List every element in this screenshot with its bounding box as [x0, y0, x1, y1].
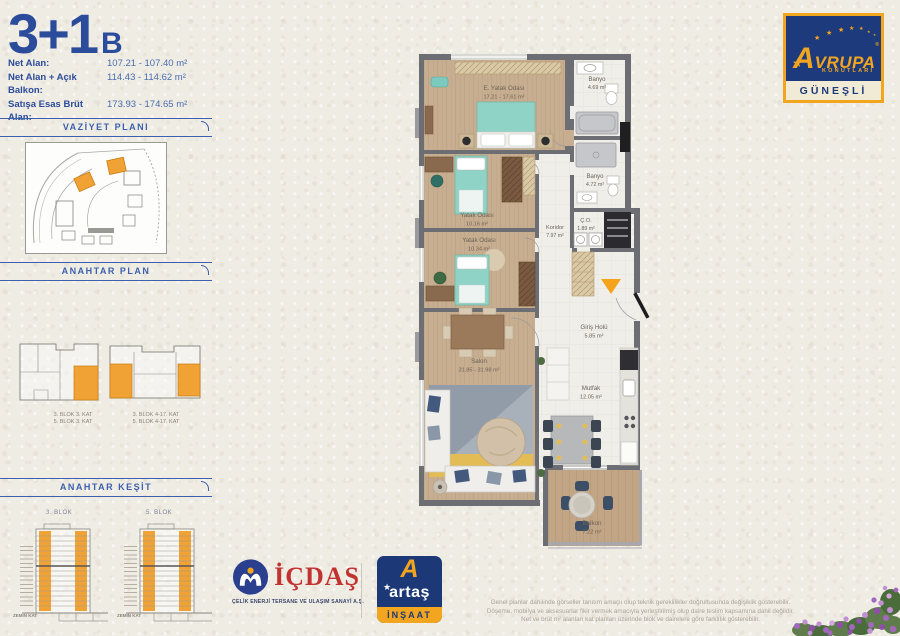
pillow — [486, 471, 502, 485]
room-area: 5.85 m² — [585, 334, 604, 340]
room-area: 7.97 m² — [546, 233, 564, 239]
logo-divider — [361, 563, 362, 618]
chair — [431, 175, 443, 187]
plant — [537, 357, 545, 365]
washer — [574, 233, 587, 246]
room-label: E. Yatak Odası — [483, 85, 524, 92]
room-area: 17.21 - 17.61 m² — [483, 95, 524, 101]
room-area: 31.85 - 31.98 m² — [458, 368, 499, 374]
kesit-floor-list-1 — [20, 546, 33, 608]
floor-plan: E. Yatak Odası 17.21 - 17.61 m² Banyo 4.… — [415, 50, 667, 600]
caption-line: 5. BLOK 3. KAT — [28, 419, 118, 426]
kitchen-chair — [591, 438, 601, 450]
room-label: Yatak Odası — [462, 237, 496, 244]
pillow — [509, 134, 533, 146]
artas-a-mark: A — [377, 557, 442, 582]
balcony-chair — [603, 496, 613, 510]
project-name-band: GÜNEŞLİ — [786, 81, 881, 100]
disclaimer-line: Genel planlar dahilinde görseller tanıtı… — [468, 599, 813, 608]
caption-line: 3. BLOK 4-17. KAT — [108, 412, 204, 419]
wardrobe — [455, 62, 561, 74]
room-label: Giriş Holü — [580, 324, 608, 331]
disclaimer-line: Döşeme, mobilya ve aksesuarlar fikir ver… — [468, 608, 813, 617]
artas-logo: A ★ artaş İNŞAAT — [377, 556, 442, 623]
room-label: Ç.O. — [580, 218, 592, 224]
room-label: Banyo — [586, 174, 604, 180]
balcony-chair — [575, 481, 589, 491]
spec-net-alan-balkon: Net Alan + Açık Balkon: 114.43 - 114.62 … — [8, 71, 308, 98]
oven — [620, 350, 638, 370]
toilet — [607, 176, 619, 184]
spec-label: Net Alan: — [8, 57, 107, 71]
room-area: 7.22 m² — [583, 530, 602, 536]
kesit-blok-1-label: 3. BLOK — [46, 510, 72, 516]
lamp — [462, 137, 470, 145]
legal-disclaimer: Genel planlar dahilinde görseller tanıtı… — [468, 599, 813, 625]
room-area: 10.34 m² — [468, 247, 490, 253]
room-label: Salon — [471, 358, 487, 365]
room-label: Mutfak — [582, 385, 601, 392]
apartment-type: 3+1 — [8, 2, 97, 65]
caption-line: 5. BLOK 4-17. KAT — [108, 419, 204, 426]
dining-chair — [483, 349, 496, 357]
icdas-caption: ÇELİK ENERJİ TERSANE VE ULAŞIM SANAYİ A.… — [232, 599, 360, 605]
sink — [577, 62, 603, 74]
spec-value: 107.21 - 107.40 m² — [107, 57, 187, 71]
dining-table — [451, 315, 504, 349]
flower-decoration — [785, 580, 900, 636]
key-plan-diagrams — [10, 338, 210, 413]
key-plan-2 — [110, 346, 200, 398]
disclaimer-line: Net ve brüt m² alanları kat planları üze… — [468, 616, 813, 625]
spec-label: Net Alan + Açık Balkon: — [8, 71, 107, 98]
artas-wordmark: artaş — [377, 584, 442, 602]
dining-chair — [459, 349, 472, 357]
registered-mark: ® — [875, 42, 879, 48]
desk — [426, 286, 454, 301]
sink — [577, 192, 597, 203]
kitchen-chair — [591, 420, 601, 432]
shaft — [620, 122, 630, 152]
dining-chair — [443, 326, 451, 339]
key-plan-2-caption: 3. BLOK 4-17. KAT 5. BLOK 4-17. KAT — [108, 412, 204, 426]
room-label: Balkon — [583, 520, 602, 527]
room-label: Koridor — [546, 225, 564, 231]
icdas-wordmark: İÇDAŞ — [274, 562, 360, 592]
caption-line: 3. BLOK 3. KAT — [28, 412, 118, 419]
project-name: GÜNEŞLİ — [800, 85, 868, 97]
pillow — [427, 395, 441, 413]
pillow — [454, 469, 470, 483]
kesit-ground-2-label: ZEMİN KAT — [117, 613, 141, 618]
site-plan-map — [25, 142, 167, 254]
section-title: ANAHTAR PLAN — [0, 266, 212, 276]
icdas-logo: İÇDAŞ ÇELİK ENERJİ TERSANE VE ULAŞIM SAN… — [232, 558, 360, 605]
room-label: Banyo — [588, 77, 606, 83]
pillow — [427, 425, 440, 440]
coffee-table — [477, 418, 525, 466]
spec-net-alan: Net Alan: 107.21 - 107.40 m² — [8, 57, 308, 71]
highlighted-block-1 — [74, 172, 95, 192]
konutlari-label: KONUTLARI — [822, 68, 874, 74]
cabinets — [547, 348, 569, 400]
lamp — [541, 137, 549, 145]
room-label: Yatak Odası — [460, 212, 494, 219]
pillow — [512, 469, 526, 482]
kitchen-chair — [543, 456, 553, 468]
key-plan-1-caption: 3. BLOK 3. KAT 5. BLOK 3. KAT — [28, 412, 118, 426]
room-area: 4.69 m² — [588, 85, 606, 91]
section-tower-2 — [126, 524, 212, 621]
artas-insaat-label: İNŞAAT — [387, 610, 432, 620]
closet — [604, 212, 631, 248]
section-tower-1 — [22, 524, 108, 621]
room-area: 10.16 m² — [466, 222, 488, 228]
avrupa-konutlari-logo: ★ ★ ★ ★ ★ ★ ★ ★ AVRUPA® KONUTLARI GÜNEŞL… — [783, 13, 884, 103]
kitchen-chair — [543, 420, 553, 432]
spec-value: 114.43 - 114.62 m² — [107, 71, 186, 98]
wardrobe — [502, 157, 522, 202]
artas-insaat-band: İNŞAAT — [377, 607, 442, 623]
pillow — [457, 257, 487, 269]
pillow — [457, 158, 485, 170]
avrupa-big-a: A — [793, 42, 815, 75]
kesit-ground-1-label: ZEMİN KAT — [13, 613, 37, 618]
icdas-icon — [232, 558, 269, 596]
plant — [537, 469, 545, 477]
apartment-variant: B — [101, 27, 123, 60]
dryer — [589, 233, 602, 246]
dining-chair — [505, 326, 513, 339]
wardrobe — [519, 262, 535, 306]
room-area: 12.05 m² — [580, 395, 602, 401]
site-plan-sketch — [26, 143, 166, 253]
kesit-blok-2-label: 5. BLOK — [146, 510, 172, 516]
desk — [425, 157, 453, 172]
key-plan-1 — [20, 344, 98, 400]
fridge — [621, 442, 637, 463]
room-area: 4.72 m² — [586, 182, 604, 188]
section-title: ANAHTAR KEŞİT — [0, 482, 212, 492]
brochure-page: 3+1B Net Alan: 107.21 - 107.40 m² Net Al… — [0, 0, 900, 636]
highlighted-block-2 — [107, 157, 127, 174]
dresser — [425, 106, 433, 134]
kitchen-chair — [591, 456, 601, 468]
kitchen-chair — [543, 438, 553, 450]
anahtar-plan-header: ANAHTAR PLAN — [0, 262, 212, 281]
anahtar-kesit-header: ANAHTAR KEŞİT — [0, 478, 212, 497]
section-title: VAZİYET PLANI — [0, 122, 212, 132]
room-area: 1.89 m² — [577, 226, 595, 232]
pillow — [481, 134, 505, 146]
area-specs: Net Alan: 107.21 - 107.40 m² Net Alan + … — [8, 57, 308, 125]
shower — [576, 143, 616, 167]
chair — [434, 272, 446, 284]
shelf-unit — [572, 252, 594, 296]
cabinet — [523, 157, 535, 195]
kesit-floor-list-2 — [124, 546, 137, 608]
vaziyet-plani-header: VAZİYET PLANI — [0, 118, 212, 137]
armchair — [431, 77, 448, 87]
page-title: 3+1B — [8, 6, 123, 62]
sink — [623, 380, 635, 396]
